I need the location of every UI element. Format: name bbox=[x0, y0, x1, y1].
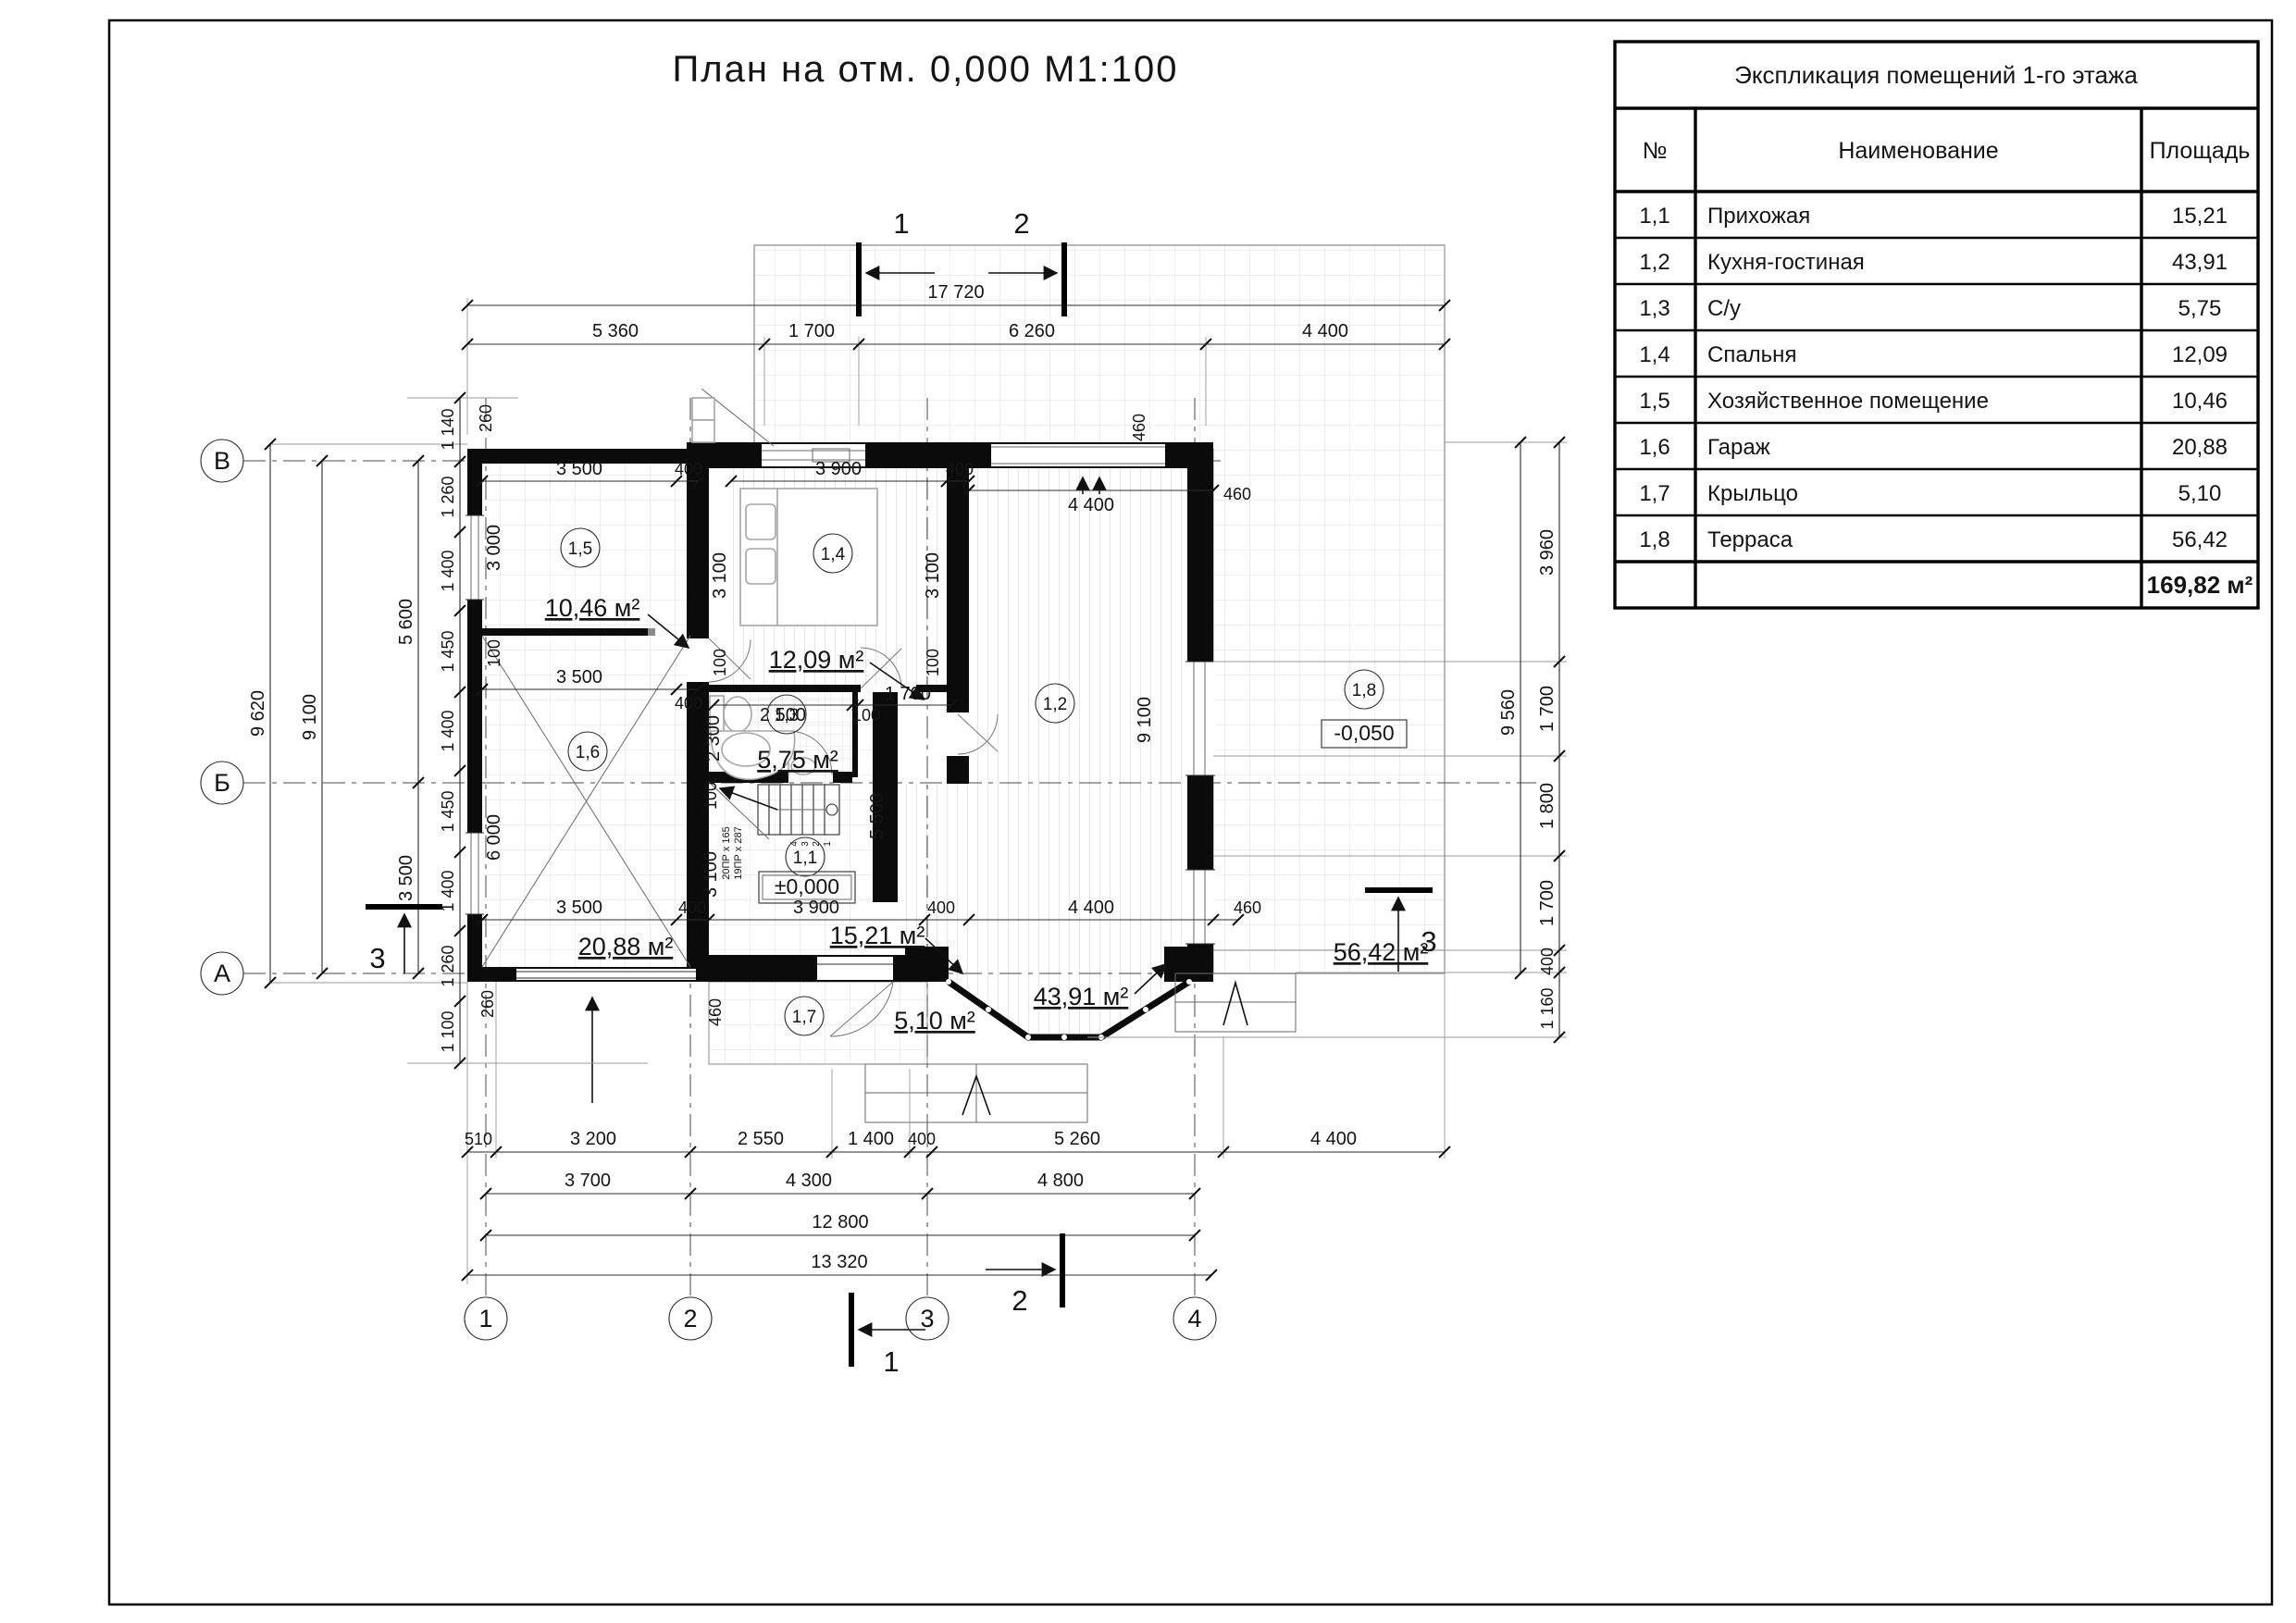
svg-text:Хозяйственное помещение: Хозяйственное помещение bbox=[1707, 389, 1989, 414]
room-area: 5,75 м² bbox=[757, 746, 838, 774]
svg-text:Кухня-гостиная: Кухня-гостиная bbox=[1707, 250, 1865, 275]
svg-text:Терраса: Терраса bbox=[1707, 527, 1793, 552]
dim-label: 100 bbox=[485, 639, 503, 667]
svg-text:20,88: 20,88 bbox=[2172, 435, 2228, 460]
partition-end-cap bbox=[648, 628, 655, 636]
svg-text:5,10: 5,10 bbox=[2178, 481, 2222, 506]
dim-label: 3 700 bbox=[565, 1171, 611, 1191]
dim-label: 9 620 bbox=[248, 690, 268, 737]
porch-steps bbox=[865, 1064, 1087, 1122]
dim-label: 400 bbox=[675, 694, 702, 712]
dim-label: 100 bbox=[711, 649, 729, 676]
svg-text:1,4: 1,4 bbox=[1639, 342, 1669, 367]
dim-label: 1 400 bbox=[439, 550, 457, 591]
svg-text:1,6: 1,6 bbox=[576, 743, 600, 762]
table-title: Экспликация помещений 1-го этажа bbox=[1734, 61, 2138, 89]
table-row: 1,8 Терраса 56,42 bbox=[1639, 527, 2228, 552]
dim-label: 5 260 bbox=[1054, 1129, 1100, 1149]
section-label: 2 bbox=[1011, 1284, 1027, 1317]
stair-note: 19ПР x 287 bbox=[733, 826, 744, 879]
dims-bottom: 510 3 200 2 550 1 400 400 5 260 4 400 3 … bbox=[462, 1129, 1450, 1281]
dim-label: 4 300 bbox=[786, 1171, 832, 1191]
dim-label: 510 bbox=[465, 1130, 492, 1148]
window-left-1 bbox=[465, 515, 484, 600]
table-row: 1,3 С/у 5,75 bbox=[1639, 296, 2221, 321]
dim-label: 460 bbox=[1130, 414, 1148, 441]
table-row: 1,6 Гараж 20,88 bbox=[1639, 435, 2228, 460]
axis-col-label: 4 bbox=[1187, 1305, 1201, 1332]
dim-label: 2 300 bbox=[703, 715, 724, 762]
dim-label: 460 bbox=[1223, 485, 1251, 503]
axis-row-label: А bbox=[214, 960, 230, 987]
dim-label: 100 bbox=[852, 706, 880, 725]
room-area: 15,21 м² bbox=[830, 922, 925, 949]
dims-right: 9 560 3 960 1 700 1 800 1 700 400 1 160 bbox=[1498, 437, 1565, 1043]
room-area: 20,88 м² bbox=[578, 933, 674, 960]
level-terrace: -0,050 bbox=[1334, 721, 1394, 745]
dim-label: 1 700 bbox=[1537, 686, 1558, 732]
axis-row-label: В bbox=[214, 447, 230, 475]
section-label: 1 bbox=[893, 207, 909, 240]
table-col-name: Наименование bbox=[1838, 138, 1998, 164]
svg-text:1,3: 1,3 bbox=[775, 706, 799, 725]
svg-text:1,1: 1,1 bbox=[793, 849, 817, 868]
section-label: 1 bbox=[883, 1345, 899, 1378]
floor-plan-svg: План на отм. 0,000 М1:100 bbox=[0, 0, 2296, 1623]
stair-step-number: 3 bbox=[800, 841, 811, 847]
dim-label: 100 bbox=[924, 649, 942, 676]
stair-note: 20ПР x 165 bbox=[721, 826, 732, 879]
dim-label: 3 500 bbox=[556, 459, 602, 479]
dim-label: 3 900 bbox=[815, 459, 862, 479]
axis-col-label: 1 bbox=[478, 1305, 492, 1332]
dim-label: 1 700 bbox=[885, 684, 931, 704]
svg-text:Спальня: Спальня bbox=[1707, 342, 1796, 367]
dim-label: 9 100 bbox=[300, 694, 320, 740]
dim-label: 3 100 bbox=[710, 552, 730, 599]
svg-text:1,2: 1,2 bbox=[1043, 695, 1067, 714]
svg-text:43,91: 43,91 bbox=[2172, 250, 2228, 275]
dim-label: 400 bbox=[927, 898, 955, 917]
dim-label: 3 500 bbox=[396, 855, 416, 901]
dim-label: 9 560 bbox=[1498, 689, 1519, 736]
dim-label: 2 550 bbox=[738, 1129, 784, 1149]
dim-label: 5 500 bbox=[867, 793, 887, 839]
dim-label: 17 720 bbox=[927, 282, 984, 303]
svg-text:1,5: 1,5 bbox=[568, 539, 592, 559]
dim-label: 400 bbox=[678, 898, 706, 917]
dim-label: 3 500 bbox=[556, 898, 602, 918]
dim-label: 1 260 bbox=[439, 945, 457, 986]
dim-label: 400 bbox=[675, 460, 702, 478]
dim-label: 1 400 bbox=[439, 710, 457, 751]
dim-label: 1 800 bbox=[1537, 783, 1558, 829]
dim-label: 1 450 bbox=[439, 630, 457, 672]
drawing-sheet: План на отм. 0,000 М1:100 bbox=[0, 0, 2296, 1623]
flue-box bbox=[692, 398, 714, 442]
dim-label: 260 bbox=[477, 404, 495, 432]
section-label: 2 bbox=[1013, 207, 1029, 240]
dim-label: 3 200 bbox=[570, 1129, 616, 1149]
dim-label: 9 100 bbox=[1135, 697, 1155, 743]
page-title: План на отм. 0,000 М1:100 bbox=[672, 49, 1178, 90]
dim-label: 12 800 bbox=[812, 1212, 868, 1233]
explication-table: Экспликация помещений 1-го этажа № Наиме… bbox=[1615, 42, 2258, 608]
svg-text:1,1: 1,1 bbox=[1639, 204, 1669, 229]
table-row: 1,2 Кухня-гостиная 43,91 bbox=[1639, 250, 2228, 275]
table-col-area: Площадь bbox=[2150, 138, 2251, 164]
window-kitchen-right-1 bbox=[1185, 662, 1215, 775]
garage-gate bbox=[516, 969, 696, 980]
window-kitchen-right-2 bbox=[1185, 870, 1215, 944]
svg-text:1,8: 1,8 bbox=[1352, 681, 1376, 700]
table-row: 1,5 Хозяйственное помещение 10,46 bbox=[1639, 389, 2228, 414]
dim-label: 3 100 bbox=[701, 851, 721, 898]
dim-label: 260 bbox=[478, 990, 497, 1018]
room-area: 12,09 м² bbox=[769, 646, 864, 674]
svg-text:12,09: 12,09 bbox=[2172, 342, 2228, 367]
dim-label: 1 700 bbox=[788, 321, 835, 341]
table-row: 1,1 Прихожая 15,21 bbox=[1639, 204, 2228, 229]
dim-label: 1 400 bbox=[848, 1129, 894, 1149]
window-left-2 bbox=[465, 833, 484, 914]
dim-label: 3 900 bbox=[793, 898, 839, 918]
axis-col-label: 3 bbox=[920, 1305, 934, 1332]
dim-label: 3 100 bbox=[923, 552, 943, 599]
svg-text:1,3: 1,3 bbox=[1639, 296, 1669, 321]
dim-label: 3 500 bbox=[556, 667, 602, 688]
svg-text:Крыльцо: Крыльцо bbox=[1707, 481, 1798, 506]
dim-label: 460 bbox=[1234, 898, 1261, 917]
dim-label: 6 260 bbox=[1009, 321, 1055, 341]
table-row: 1,7 Крыльцо 5,10 bbox=[1639, 481, 2221, 506]
dim-label: 1 260 bbox=[439, 476, 457, 517]
section-label: 3 bbox=[369, 942, 385, 974]
dim-label: 460 bbox=[706, 998, 725, 1026]
dim-label: 3 960 bbox=[1537, 529, 1558, 576]
svg-text:Прихожая: Прихожая bbox=[1707, 204, 1810, 229]
dim-label: 400 bbox=[946, 460, 974, 478]
svg-text:1,7: 1,7 bbox=[1639, 481, 1669, 506]
section-mark-left: 3 bbox=[366, 907, 442, 974]
axis-col-label: 2 bbox=[683, 1305, 697, 1332]
dim-label: 400 bbox=[908, 1130, 936, 1148]
svg-text:С/у: С/у bbox=[1707, 296, 1741, 321]
svg-text:1,5: 1,5 bbox=[1639, 389, 1669, 414]
room-area: 5,10 м² bbox=[894, 1007, 975, 1035]
table-total: 169,82 м² bbox=[2147, 571, 2253, 599]
dim-label: 1 160 bbox=[1538, 987, 1557, 1029]
table-row: 1,4 Спальня 12,09 bbox=[1639, 342, 2228, 367]
dim-label: 1 450 bbox=[439, 790, 457, 832]
room-area: 10,46 м² bbox=[545, 594, 640, 622]
dim-label: 1 700 bbox=[1537, 880, 1558, 926]
axis-row-label: Б bbox=[214, 769, 230, 797]
dim-label: 6 000 bbox=[484, 814, 504, 861]
svg-text:1,7: 1,7 bbox=[792, 1008, 816, 1027]
svg-text:10,46: 10,46 bbox=[2172, 389, 2228, 414]
terrace-steps bbox=[1175, 973, 1296, 1032]
svg-text:Гараж: Гараж bbox=[1707, 435, 1770, 460]
stair-step-number: 1 bbox=[823, 841, 833, 847]
dim-label: 4 400 bbox=[1302, 321, 1348, 341]
dim-label: 1 140 bbox=[439, 408, 457, 450]
svg-text:56,42: 56,42 bbox=[2172, 527, 2228, 552]
svg-text:15,21: 15,21 bbox=[2172, 204, 2228, 229]
room-area: 56,42 м² bbox=[1334, 938, 1429, 966]
dim-label: 4 400 bbox=[1068, 495, 1114, 515]
dim-label: 5 360 bbox=[592, 321, 639, 341]
table-col-num: № bbox=[1643, 138, 1668, 164]
svg-text:1,6: 1,6 bbox=[1639, 435, 1669, 460]
svg-text:5,75: 5,75 bbox=[2178, 296, 2222, 321]
dim-label: 3 000 bbox=[484, 525, 504, 571]
dim-label: 4 800 bbox=[1037, 1171, 1084, 1191]
dim-label: 4 400 bbox=[1068, 898, 1114, 918]
bed bbox=[740, 489, 877, 626]
dim-label: 13 320 bbox=[811, 1252, 867, 1272]
level-zero: ±0,000 bbox=[775, 874, 839, 898]
dim-label: 5 600 bbox=[396, 599, 416, 645]
dim-label: 4 400 bbox=[1310, 1129, 1357, 1149]
svg-text:1,2: 1,2 bbox=[1639, 250, 1669, 275]
svg-text:1,4: 1,4 bbox=[821, 545, 846, 564]
svg-text:1,8: 1,8 bbox=[1639, 527, 1669, 552]
dim-label: 100 bbox=[701, 782, 720, 810]
section-marks-bottom: 1 2 bbox=[851, 1233, 1062, 1378]
dim-label: 1 100 bbox=[439, 1010, 457, 1052]
dim-label: 400 bbox=[1538, 948, 1557, 975]
room-area: 43,91 м² bbox=[1034, 983, 1129, 1010]
